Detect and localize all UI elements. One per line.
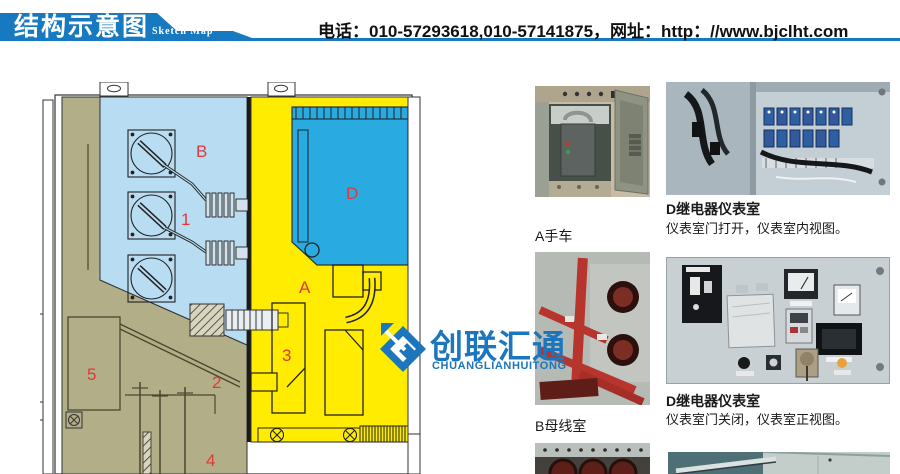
contact-info: 电话：010-57293618,010-57141875，网址：http：//w…: [318, 17, 878, 42]
bolt-icon: [66, 412, 82, 428]
zone-label-1: 1: [181, 210, 190, 229]
zone-label-5: 5: [87, 365, 96, 384]
zone-label-3: 3: [282, 346, 291, 365]
photo-panel-partial: [668, 452, 890, 474]
photo-cable-room-partial: [535, 443, 650, 474]
company-logo-icon: [378, 320, 428, 376]
photo-relay-room-closed: [666, 257, 890, 384]
page-title: 结构示意图: [14, 13, 149, 41]
caption-busbar-room: B母线室: [535, 416, 586, 436]
caption-relay-open-sub: 仪表室门打开，仪表室内视图。: [666, 218, 848, 237]
zone-label-d: D: [346, 184, 358, 203]
zone-label-4: 4: [206, 451, 215, 470]
caption-handcart: A手车: [535, 226, 572, 246]
photo-handcart: [535, 86, 650, 197]
caption-relay-closed-sub: 仪表室门关闭，仪表室正视图。: [666, 409, 848, 428]
page-title-english: Sketch Map: [152, 26, 213, 37]
watermark-company-latin: CHUANGLIANHUITONG: [432, 360, 567, 372]
caption-relay-open-title: D继电器仪表室: [666, 199, 760, 219]
lifting-lug-icon: [100, 82, 295, 96]
switchgear-section-diagram: B 1 D A 3 2 5 4: [40, 82, 425, 474]
caption-relay-closed-title: D继电器仪表室: [666, 391, 760, 411]
zone-label-a: A: [299, 278, 311, 297]
zone-label-2: 2: [212, 373, 221, 392]
company-watermark: 创联汇通 CHUANGLIANHUITONG: [378, 320, 628, 388]
zone-label-b: B: [196, 142, 207, 161]
diagram-drawing: B 1 D A 3 2 5 4: [40, 82, 425, 474]
vent-grille-icon: [360, 426, 408, 442]
photo-relay-room-open: [666, 82, 890, 195]
